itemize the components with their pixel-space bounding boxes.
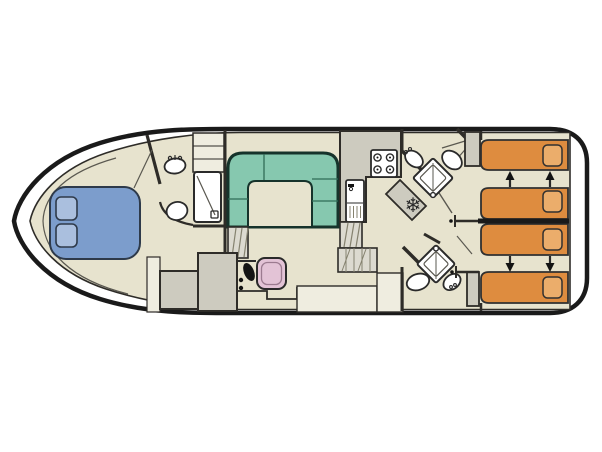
aft-cabins	[449, 131, 569, 311]
door-pivot-dot	[450, 270, 454, 274]
pillow-orange-2	[543, 191, 562, 212]
shelf-unit	[193, 133, 224, 172]
aft-steps-lower	[338, 248, 377, 272]
boat-floorplan: ❄	[0, 0, 602, 452]
helm-cabinet-2	[198, 253, 237, 311]
pillow-orange-4	[543, 277, 562, 298]
side-counter	[147, 257, 160, 312]
shower-drain	[434, 246, 439, 251]
bottom-counter	[297, 286, 377, 312]
floorplan-drawing: ❄	[0, 0, 602, 452]
burner-dot	[389, 169, 391, 171]
cabin-step-block-top	[465, 132, 480, 166]
pillow-orange-1	[543, 145, 562, 166]
pillow-blue-1	[56, 197, 77, 220]
burner-dot	[377, 169, 379, 171]
u-sofa-inner	[248, 181, 312, 227]
cabin-step-block-bottom	[467, 272, 479, 306]
helm-cabinet-1	[160, 271, 198, 309]
helm-dot	[239, 278, 243, 282]
fridge-snowflake-icon: ❄	[405, 193, 422, 217]
burner-dot	[389, 157, 391, 159]
bottom-counter-tall	[377, 273, 403, 312]
door-pivot-dot	[449, 219, 453, 223]
pillow-orange-3	[543, 229, 562, 250]
pillow-blue-2	[56, 224, 77, 247]
sink-faucet	[348, 184, 354, 187]
stove	[371, 150, 397, 177]
helm-dot	[239, 286, 243, 290]
shower-drain	[431, 193, 436, 198]
burner-dot	[377, 157, 379, 159]
